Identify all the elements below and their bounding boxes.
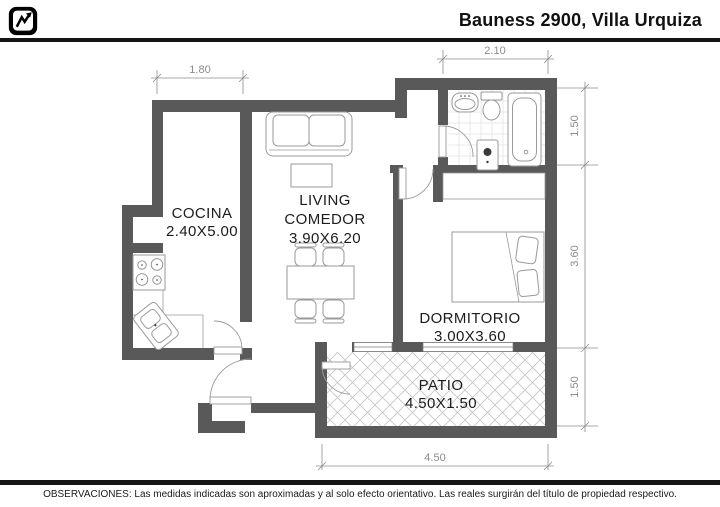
toilet-icon xyxy=(481,92,502,120)
wall-patio-bottom xyxy=(315,426,557,438)
entry-door-arc xyxy=(210,359,251,400)
dining-chair-back xyxy=(323,319,344,323)
dim-bathroom-top: 2.10 xyxy=(437,45,554,74)
bedroom xyxy=(399,168,545,302)
bed-icon xyxy=(452,232,544,302)
bedroom-door-leaf xyxy=(399,168,406,199)
dining-chair xyxy=(323,300,344,318)
wall-kitchen-left-upper xyxy=(152,100,163,212)
wall-kitchen-left-lower xyxy=(122,205,133,360)
wall-entry-step-h xyxy=(198,421,245,433)
dining-chair xyxy=(323,248,344,266)
entry-door xyxy=(210,359,251,404)
bedroom-door-arc xyxy=(402,169,433,199)
room-label-cocina: COCINA xyxy=(172,205,233,222)
bathroom-door-leaf xyxy=(439,126,446,157)
dim-patio-bottom: 4.50 xyxy=(316,444,554,470)
stove-icon xyxy=(133,255,165,290)
observations-text: OBSERVACIONES: Las medidas indicadas son… xyxy=(0,489,720,500)
opening-bedroom-door xyxy=(403,165,433,173)
sofa-icon xyxy=(266,112,352,156)
room-size-living: 3.90X6.20 xyxy=(289,230,361,247)
dining-table-icon xyxy=(287,266,354,299)
kitchen xyxy=(132,255,242,354)
room-label-dormitorio: DORMITORIO xyxy=(419,310,520,327)
dim-label: 1.50 xyxy=(569,376,581,397)
kitchen-sink-icon xyxy=(132,301,180,351)
room-size-dormitorio: 3.00X3.60 xyxy=(434,328,506,345)
wall-bottom-segment xyxy=(251,403,322,413)
wall-kitchen-niche xyxy=(133,243,163,253)
room-label-patio: PATIO xyxy=(419,377,464,394)
room-label-comedor: COMEDOR xyxy=(284,211,365,228)
room-label-living: LIVING xyxy=(299,192,351,209)
dining-chair-back xyxy=(295,319,316,323)
closet-icon xyxy=(443,173,545,199)
dining-set xyxy=(287,243,354,323)
kitchen-door-arc xyxy=(214,321,242,349)
bidet-icon xyxy=(477,140,498,170)
wall-top-living xyxy=(152,100,395,112)
wall-right xyxy=(545,78,557,438)
dim-label: 1.80 xyxy=(189,64,210,76)
footer-rule xyxy=(0,480,720,485)
bathtub-icon xyxy=(508,93,541,166)
wall-bathroom-top xyxy=(395,78,557,90)
dim-label: 2.10 xyxy=(484,45,505,57)
dim-right-column: 1.50 3.60 1.50 xyxy=(557,82,598,432)
floor-plan: 1.80 2.10 1.50 3.60 1.50 4.50 COCINA 2.4… xyxy=(0,0,720,507)
bathroom-sink-icon xyxy=(452,93,478,112)
dim-label: 3.60 xyxy=(569,245,581,266)
room-size-patio: 4.50X1.50 xyxy=(405,395,477,412)
bathroom xyxy=(439,90,545,170)
room-size-cocina: 2.40X5.00 xyxy=(166,223,238,240)
opening-patio-door xyxy=(327,342,352,352)
wall-kitchen-bottom xyxy=(122,348,214,360)
dim-label: 4.50 xyxy=(424,452,445,464)
dining-chair xyxy=(295,300,316,318)
dim-kitchen-top: 1.80 xyxy=(151,64,249,94)
entry-door-leaf xyxy=(210,397,251,404)
wall-kitchen-living-divider xyxy=(240,100,252,322)
patio-door-leaf xyxy=(322,362,350,369)
kitchen-door-leaf xyxy=(214,347,242,354)
dining-chair xyxy=(295,248,316,266)
coffee-table-icon xyxy=(291,164,332,187)
bathroom-door xyxy=(439,126,473,157)
dim-label: 1.50 xyxy=(569,115,581,136)
kitchen-door xyxy=(214,321,242,354)
